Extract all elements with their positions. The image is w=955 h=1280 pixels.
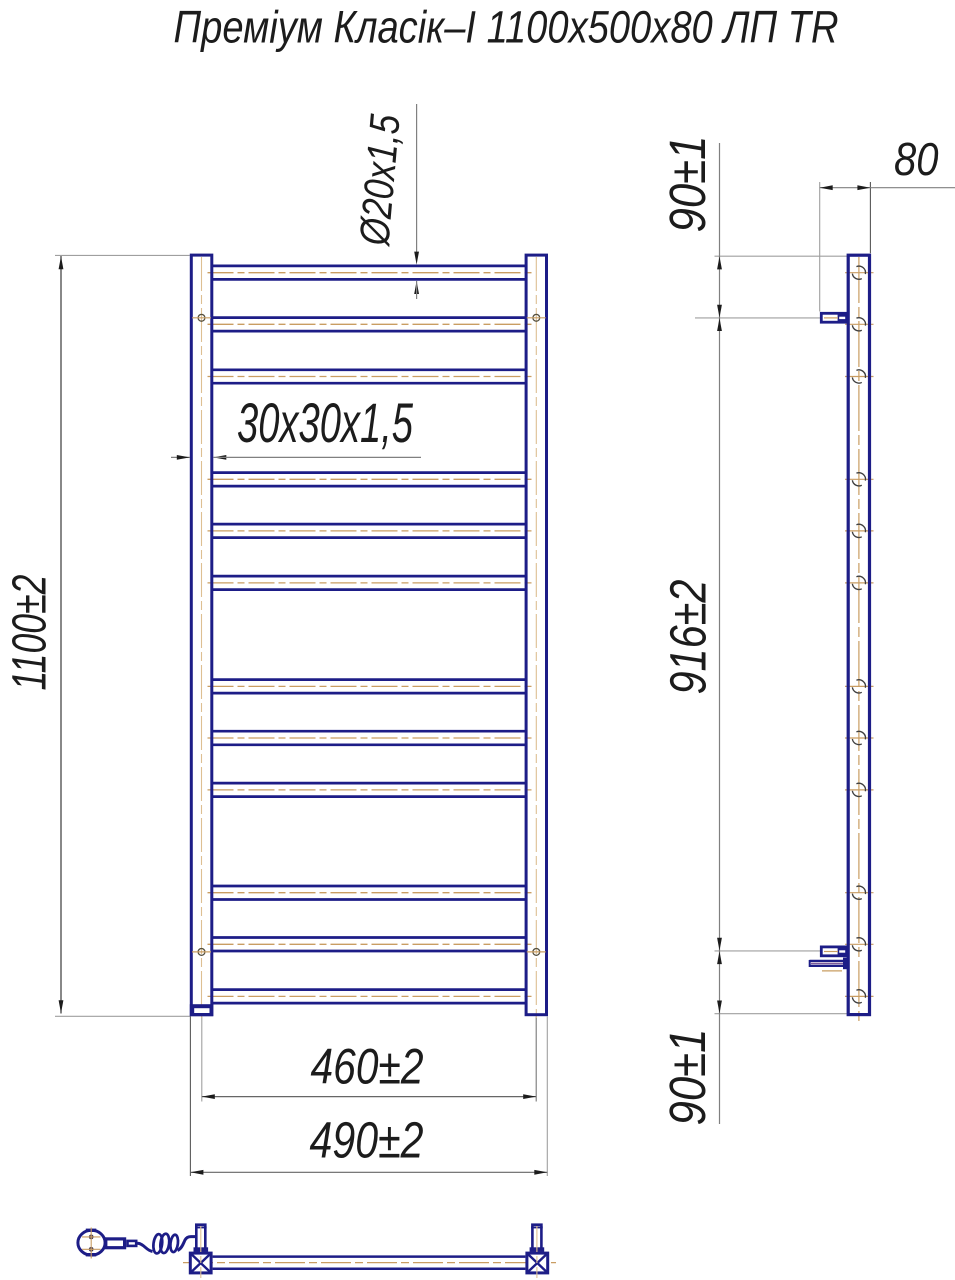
svg-text:916±2: 916±2: [660, 580, 717, 695]
svg-text:Преміум Класік–І 1100х500х80 Л: Преміум Класік–І 1100х500х80 ЛП TR: [174, 2, 839, 53]
svg-text:90±1: 90±1: [659, 1029, 716, 1126]
svg-text:80: 80: [894, 133, 939, 185]
svg-text:490±2: 490±2: [310, 1112, 424, 1169]
svg-text:30х30х1,5: 30х30х1,5: [237, 391, 414, 454]
svg-text:460±2: 460±2: [311, 1039, 424, 1095]
svg-text:1100±2: 1100±2: [4, 575, 57, 691]
svg-text:90±1: 90±1: [659, 136, 716, 233]
